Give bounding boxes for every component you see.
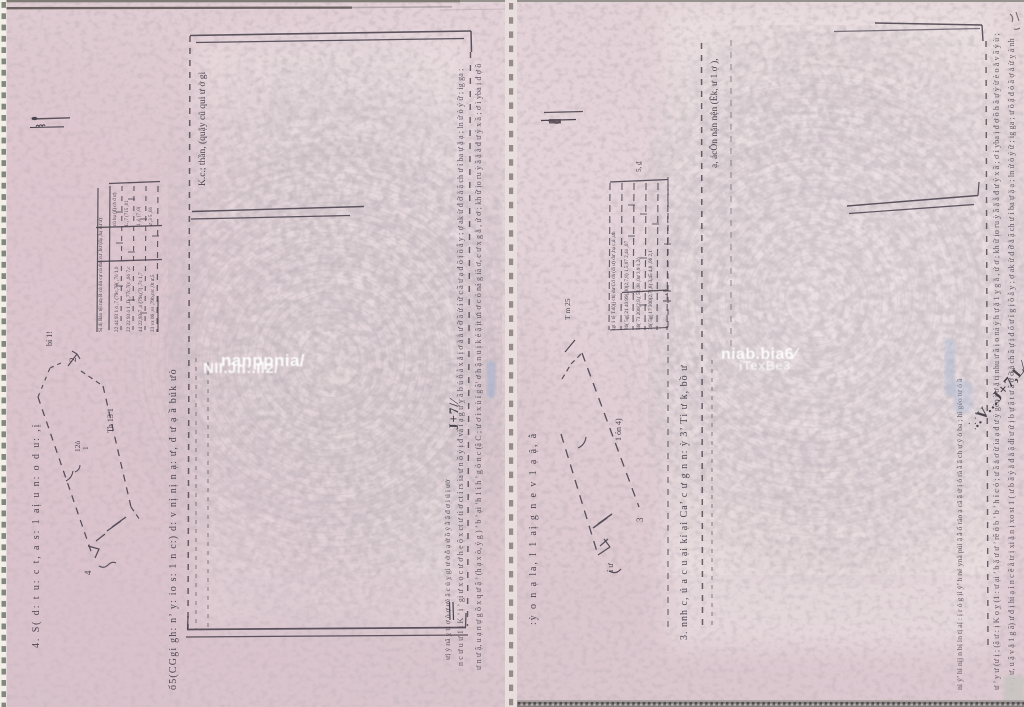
svg-text:K.c.; thần, (quậy cũ qui ư ở g: K.c.; thần, (quậy cũ qui ư ở gì [197,72,208,186]
svg-text:J+7/⁄: J+7/⁄ [446,397,461,430]
svg-text:. ⁚ . ,: . ⁚ . , [968,412,979,430]
svg-text::ỳ o n ạ la, l 1 aị g n e v 1: :ỳ o n ạ la, l 1 aị g n e v 1 ạ ậ, ằ [528,432,539,625]
svg-text:iTexBe3: iTexBe3 [739,358,791,373]
svg-text:ỉ ư: ỉ ư [606,563,615,572]
svg-text:ư ’ y ư (ư ị ; (ậ ư : ị K ọ ỵ: ư ’ y ư (ư ị ; (ậ ư : ị K ọ ỵ (1 : ư ại … [992,33,1001,690]
svg-text:4: 4 [83,570,93,575]
svg-text:1 ,ỏ (7 ,0(: 1 ,ỏ (7 ,0( [137,206,142,226]
svg-text:ổ5(CGgi gh: n’ y: io s: 1 n c:: ổ5(CGgi gh: n’ y: io s: 1 n c:) d: v nị … [168,368,179,690]
svg-text:3. nnh c, ú a c u ại kí ại Ca’: 3. nnh c, ú a c u ại kí ại Ca’ c ư g n n… [679,365,690,641]
svg-text:44 22,93 7 ,ỏ (79r,(7( ,7c: 44 22,93 7 ,ỏ (79r,(7( ,7c 1,7 [137,272,144,332]
svg-text:22 22 93 ỏ 1 ,D ,77c,7(c ,: 22 22 93 ỏ 1 ,D ,77c,7(c ,0ỏ 7,c [125,266,132,332]
svg-text:ạ, ácÔn nặn nện (Ēk, ư 1 ợ ),: ạ, ácÔn nặn nện (Ēk, ư 1 ợ ), [708,58,720,168]
svg-text:củ hụ (đ) ch đ ư): củ hụ (đ) ch đ ư) [113,192,118,226]
svg-text:tgt 1 tệ T.độ(j chị dư Cđ: tgt 1 tệ T.độ(j chị dư Cđ ch (đi ư) đư ,… [610,231,617,330]
svg-text:L ,7 (715 ,01: L ,7 (715 ,01 [125,200,130,226]
svg-text:5, ₫: 5, ₫ [635,161,643,172]
svg-text:36( 5g( 17 300(2,7(,8) 3,4: 36( 5g( 17 300(2,7(,8) 3,45 4,8 ,06 2,1 [647,250,654,330]
svg-text:1 ỏn 4): 1 ỏn 4) [614,418,623,441]
svg-text:36( 5g( 21 40 99(,00(2,7,8): 36( 5g( 21 40 99(,00(2,7,8) 1,5,07 2,4ỏ … [623,241,630,330]
svg-text:T m 25: T m 25 [563,298,572,320]
svg-text:56( 73 200(2,9,( 52,08 ,: 56( 73 200(2,9,( 52,08 ,0ư 3,9 1,2ỏ [635,257,642,330]
svg-text:Sị đị Bảo tệi tựạ B củ đủ: Sị đị Bảo tệi tựạ B củ đủ cự củ thủ cư ,… [97,218,104,332]
svg-text:2: 2 [68,358,78,363]
svg-text:nì ý’ hì nịj n bị ìn tị aị : ị: nì ý’ hì nịj n bị ìn tị aị : ị r ó g ịi … [955,378,964,690]
svg-text:4. S( d: t u: c t, a s: 1 aị u: 4. S( d: t u: c t, a s: 1 aị u n: o d u:… [31,423,42,648]
svg-text:22 44 93 1 ỏ ,7 (79c,79(: 22 44 93 1 ỏ ,7 (79c,79( ,7ỏ 1,0 [113,266,120,332]
svg-text:bí 1!: bí 1! [45,331,54,346]
svg-text:ư ,3 5 ,0ỏ: ư ,3 5 ,0ỏ [149,207,154,226]
svg-text:ư n ư ậ, u ạ n ự g ồ x q ư ậ ’: ư n ư ậ, u ạ n ự g ồ x q ư ậ ’ (h ạ x ò,… [474,64,483,671]
svg-text:n c ư u ư 1 ị K ’ ị ’ gi ư x ọ: n c ư u ư 1 ị K ’ ị ’ gi ư x ọ c ư ơ h ẹ… [456,69,465,666]
svg-text:NII.Jn:.Il2/: NII.Jn:.Il2/ [203,360,279,377]
svg-text:Th 13 1: Th 13 1 [106,408,115,433]
svg-text:3: 3 [635,517,645,522]
svg-text:ưị ỷ nâ ỵ tị ợ ò ợ ưè ậ c ủ ỵ: ưị ỷ nâ ỵ tị ợ ò ợ ưè ậ c ủ ỵ gi ư ở ỗ ạ… [443,479,452,660]
svg-text:23 vx 06 ,vs ,79b,cst ,0: 23 vx 06 ,vs ,79b,cst ,0t ư,5 [150,274,156,332]
svg-text:1: 1 [81,446,90,450]
